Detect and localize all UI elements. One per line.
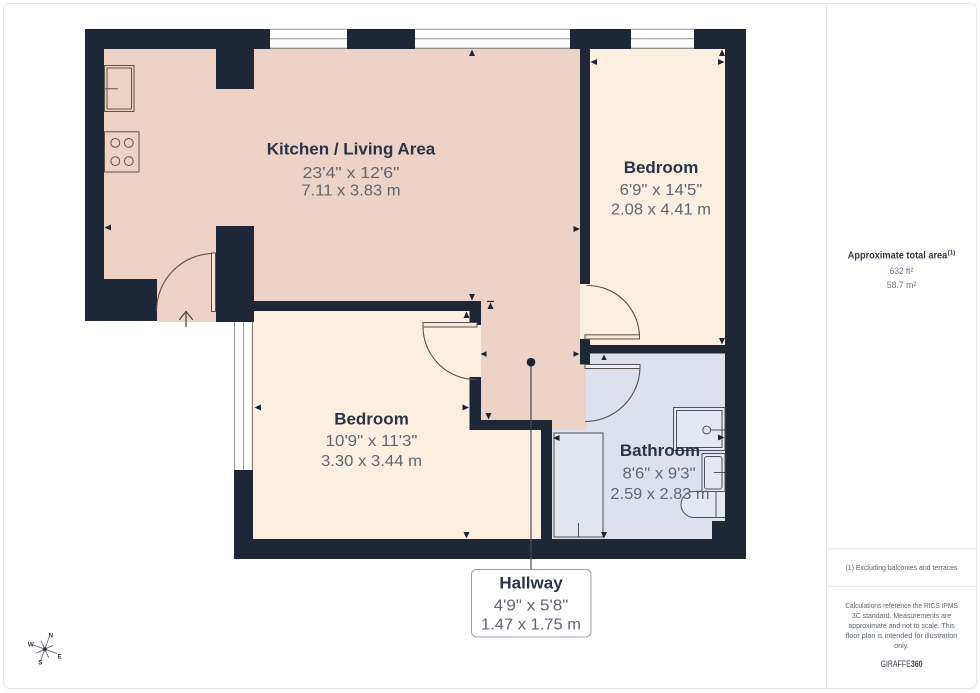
svg-text:Calculations reference the RIC: Calculations reference the RICS IPMS — [845, 601, 958, 610]
svg-text:Bedroom: Bedroom — [334, 410, 409, 429]
svg-text:E: E — [58, 654, 62, 661]
svg-text:3C standard. Measurements are: 3C standard. Measurements are — [852, 611, 951, 620]
svg-text:4'9" x 5'8": 4'9" x 5'8" — [494, 597, 569, 614]
svg-text:Bathroom: Bathroom — [620, 441, 700, 460]
svg-text:Kitchen / Living Area: Kitchen / Living Area — [267, 140, 436, 159]
svg-text:Approximate total area: Approximate total area — [848, 251, 948, 262]
svg-text:7.11 x 3.83 m: 7.11 x 3.83 m — [301, 183, 400, 200]
svg-text:58.7 m²: 58.7 m² — [887, 280, 917, 291]
svg-text:(1) Excluding balconies and te: (1) Excluding balconies and terraces — [846, 563, 958, 572]
svg-text:Bedroom: Bedroom — [624, 158, 699, 177]
svg-text:W: W — [28, 642, 34, 649]
svg-text:23'4" x 12'6": 23'4" x 12'6" — [303, 165, 400, 182]
svg-text:10'9" x 11'3": 10'9" x 11'3" — [326, 433, 418, 450]
svg-text:2.59 x 2.83 m: 2.59 x 2.83 m — [610, 486, 709, 503]
svg-text:approximate and not to scale.: approximate and not to scale. This — [848, 621, 955, 630]
svg-text:(1): (1) — [948, 250, 956, 257]
svg-text:Hallway: Hallway — [499, 574, 563, 593]
svg-text:3.30 x 3.44 m: 3.30 x 3.44 m — [321, 453, 422, 470]
svg-text:only.: only. — [894, 641, 909, 650]
svg-text:1.47 x 1.75 m: 1.47 x 1.75 m — [481, 617, 581, 634]
svg-text:GIRAFFE360: GIRAFFE360 — [881, 659, 923, 669]
svg-text:632 ft²: 632 ft² — [890, 266, 914, 277]
svg-text:N: N — [49, 633, 54, 640]
svg-text:2.08 x 4.41 m: 2.08 x 4.41 m — [611, 202, 711, 219]
svg-text:6'9" x 14'5": 6'9" x 14'5" — [620, 182, 703, 199]
svg-text:S: S — [38, 660, 42, 667]
svg-text:floor plan is intended for ill: floor plan is intended for illustration — [846, 631, 958, 640]
svg-text:8'6" x 9'3": 8'6" x 9'3" — [623, 466, 696, 483]
